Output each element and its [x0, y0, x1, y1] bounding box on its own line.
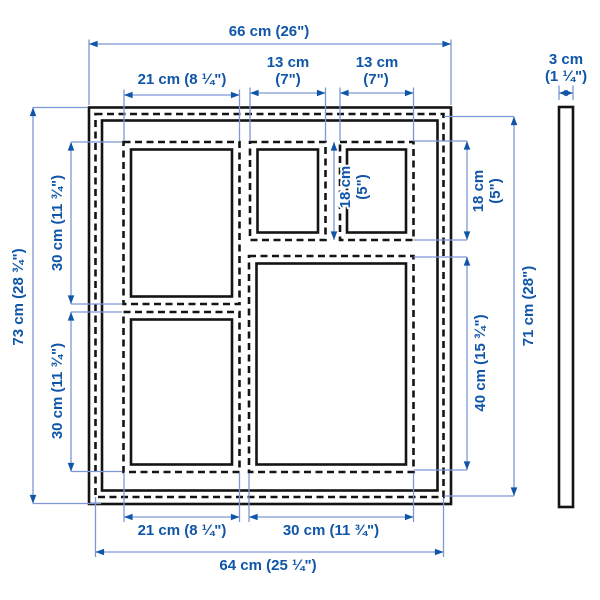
dimension-label: 21 cm (8 ¼"): [138, 71, 227, 88]
opening-window: [131, 320, 232, 465]
dimension-label: 71 cm (28"): [520, 266, 537, 347]
opening-window: [131, 150, 232, 297]
dim-small-opening-1-width: 13 cm (7"): [250, 54, 326, 141]
frame-back-dashed-edge: [96, 114, 444, 497]
dimension-label: 13 cm: [356, 54, 399, 71]
dimension-label: (5"): [487, 178, 504, 203]
dimension-label: 30 cm (11 ¾"): [49, 343, 66, 439]
opening-mat-dashed: [250, 142, 326, 240]
opening-mat-dashed: [124, 142, 240, 304]
dim-small-opening-2-height: 18 cm (5"): [414, 141, 505, 240]
dimension-label: 18 cm: [337, 166, 354, 209]
opening-mat-dashed: [249, 256, 414, 472]
opening-window: [257, 264, 407, 465]
dimension-label: 30 cm (11 ¾"): [49, 175, 66, 271]
dimension-label: 30 cm (11 ¾"): [283, 522, 379, 539]
dimension-label: (1 ¼"): [545, 68, 587, 85]
dim-inner-height: 71 cm (28"): [444, 117, 537, 497]
opening-top-left: [124, 142, 240, 304]
opening-bottom-left: [124, 312, 240, 472]
opening-bottom-right: [249, 256, 414, 472]
dim-large-opening-width: 30 cm (11 ¾"): [249, 473, 414, 539]
dimension-label: 13 cm: [267, 54, 310, 71]
dim-small-opening-2-width: 13 cm (7"): [340, 54, 414, 141]
dimension-label: 73 cm (28 ¾"): [10, 248, 27, 345]
dimension-label: 3 cm: [549, 51, 583, 68]
dimension-label: 66 cm (26"): [229, 23, 310, 40]
dimension-label: (5"): [354, 174, 371, 199]
dimension-label: 40 cm (15 ¾"): [472, 314, 489, 411]
side-profile-strip: [559, 107, 573, 507]
dim-lower-opening-height: 30 cm (11 ¾"): [49, 312, 122, 472]
dim-upper-opening-height: 30 cm (11 ¾"): [49, 142, 122, 304]
dim-side-profile-depth: 3 cm (1 ¼"): [545, 51, 587, 100]
side-profile-view: [559, 107, 573, 507]
opening-mat-dashed: [124, 312, 240, 472]
front-view: [89, 108, 451, 505]
dim-overall-height: 73 cm (28 ¾"): [10, 108, 101, 504]
opening-top-middle: [250, 142, 326, 240]
frame-outer-edge: [89, 108, 451, 505]
dim-bottom-left-opening-width: 21 cm (8 ¼"): [124, 473, 240, 539]
frame-dimension-diagram: 66 cm (26") 21 cm (8 ¼") 13 cm (7") 13 c…: [0, 0, 600, 600]
opening-window: [258, 150, 319, 233]
dimension-label: 18 cm: [470, 170, 487, 213]
dimension-label: (7"): [275, 71, 300, 88]
dimension-label: 64 cm (25 ¼"): [219, 557, 316, 574]
dimension-label: (7"): [363, 71, 388, 88]
dimension-diagram-page: 66 cm (26") 21 cm (8 ¼") 13 cm (7") 13 c…: [0, 0, 600, 600]
dim-top-left-opening-width: 21 cm (8 ¼"): [124, 71, 240, 141]
frame-inner-edge: [102, 121, 438, 491]
dimension-label: 21 cm (8 ¼"): [138, 522, 227, 539]
